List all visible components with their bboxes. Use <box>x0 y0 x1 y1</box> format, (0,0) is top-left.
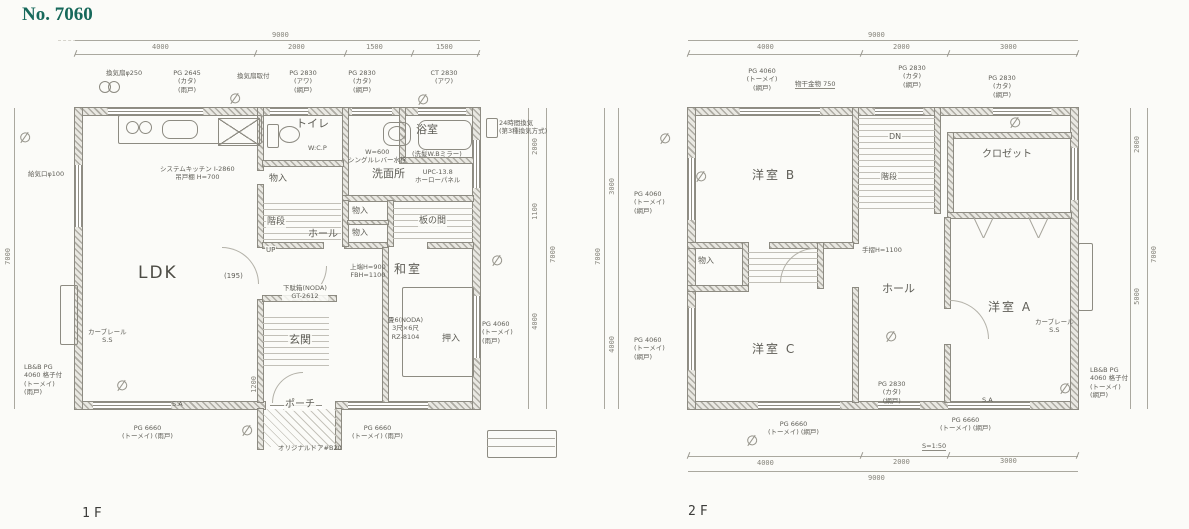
f1-note-window: PG 2830 (アワ) (網戸) <box>283 69 323 94</box>
f1-bay-window <box>60 285 78 345</box>
f2-dim-top-seg: 2000 <box>893 43 910 51</box>
f1-wall-int <box>348 221 388 224</box>
room-label-hall: ホール <box>882 282 915 296</box>
room-label-c: 洋室 C <box>752 342 796 358</box>
f2-note-curtain-rail: カーブレール S.S <box>1035 318 1074 335</box>
note-kitchen: システムキッチン I-2860 吊戸棚 H=700 <box>160 165 235 182</box>
f2-wall-int <box>818 243 823 288</box>
f2-note-window-left: PG 4060 (トーメイ) (網戸) <box>634 190 665 215</box>
room-label-bath: 浴室 <box>416 123 438 137</box>
room-label-stairs: 階段 <box>266 217 286 229</box>
f2-dim-line-bottom-total <box>688 471 1078 472</box>
room-label-b: 洋室 B <box>752 168 796 184</box>
tick <box>1076 50 1080 57</box>
f2-dim-line-left-segs <box>618 108 619 409</box>
f1-note-window: PG 2645 (カタ) (雨戸) <box>165 69 209 94</box>
f1-window <box>473 296 480 358</box>
f2-note-window-bottom: PG 6660 (トーメイ) (網戸) <box>768 420 819 437</box>
vent24-box <box>486 118 498 138</box>
f2-dim-top-total: 9000 <box>868 31 885 39</box>
f2-note-window-left: PG 4060 (トーメイ) (網戸) <box>634 336 665 361</box>
floor2-caption: 2F <box>688 504 712 519</box>
f2-note-scale: S=1:50 <box>922 442 946 451</box>
f1-dim-line-left <box>14 108 15 409</box>
room-label-closet: 物入 <box>268 174 288 186</box>
note-shoe-cabinet: 下駄箱(NODA) GT-2612 <box>282 284 328 301</box>
legend-line <box>487 446 555 447</box>
f2-dim-right-seg: 2000 <box>1133 136 1141 153</box>
f2-dim-bottom-total: 9000 <box>868 474 885 482</box>
f1-window <box>270 108 308 115</box>
f1-dim-line-top-total <box>75 40 480 41</box>
hanger-mark <box>1038 217 1049 238</box>
symbol-mark <box>20 132 28 143</box>
symbol-mark <box>242 425 250 436</box>
f2-dim-right-total: 7000 <box>1150 246 1158 263</box>
room-label-toilet: トイレ <box>296 117 329 131</box>
f2-dim-line-right-segs <box>1130 108 1131 409</box>
vent-symbol <box>108 81 120 93</box>
room-label-porch: ポーチ <box>284 398 316 411</box>
floor1-caption: 1F <box>82 506 106 521</box>
f2-note-window: PG 2830 (カタ) (網戸) <box>892 64 932 89</box>
room-label-washitsu: 和室 <box>394 262 422 278</box>
drawing-number: No. 7060 <box>22 4 93 26</box>
note-washstand: W=600 シングルレバー水栓 <box>348 148 407 165</box>
f2-wall-int <box>853 288 858 402</box>
f1-wall <box>75 108 82 409</box>
f2-wall-int <box>948 133 1071 138</box>
room-label-storage: 物入 <box>698 256 714 266</box>
note-door-195: (195) <box>224 272 243 281</box>
f2-note-window-mid: PG 2830 (カタ) (網戸) <box>878 380 906 405</box>
f2-wall-int <box>688 286 748 291</box>
f2-dim-bottom-seg: 4000 <box>757 459 774 467</box>
f1-dim-porch: 1200 <box>250 376 258 393</box>
toilet-tank <box>267 124 279 148</box>
f2-dim-left-seg: 3000 <box>608 178 616 195</box>
note-window-bottom: PG 6660 (トーメイ) (雨戸) <box>352 424 403 441</box>
f2-dim-right-seg: 5000 <box>1133 288 1141 305</box>
room-label-closet: クロゼット <box>982 148 1032 161</box>
f2-wall-int <box>948 213 1071 218</box>
note-window-left: LB&B PG 4060 格子付 (トーメイ) (雨戸) <box>24 363 62 397</box>
f2-note-window-right: LB&B PG 4060 格子付 (トーメイ) (網戸) <box>1090 366 1128 400</box>
f2-dim-top-seg: 3000 <box>1000 43 1017 51</box>
f2-wall-int <box>935 108 940 213</box>
f2-bay-window <box>1078 243 1093 311</box>
kitchen-sink <box>162 120 198 139</box>
f2-note-supply-air-mark: S.A <box>982 396 993 404</box>
f1-dim-left-total: 7000 <box>4 248 12 265</box>
room-label-a: 洋室 A <box>988 300 1032 316</box>
f2-window <box>688 308 695 370</box>
symbol-mark <box>886 331 894 342</box>
room-label-stairs: 階段 <box>880 172 898 182</box>
f1-dim-right-total: 7000 <box>549 246 557 263</box>
room-label-washroom: 洗面所 <box>372 167 405 181</box>
symbol-mark <box>660 133 668 144</box>
note-window-bottom: PG 6660 (トーメイ) (雨戸) <box>122 424 173 441</box>
room-label-oshiire: 押入 <box>442 334 460 346</box>
door-arc <box>950 300 989 339</box>
f2-wall-int <box>945 218 950 308</box>
symbol-mark <box>117 380 125 391</box>
f1-window <box>348 402 428 409</box>
f1-note-window: PG 2830 (カタ) (網戸) <box>342 69 382 94</box>
note-supply-air-mark: S.A <box>172 400 183 408</box>
f2-dim-left-total: 7000 <box>594 248 602 265</box>
hanger-mark <box>983 217 994 238</box>
note-window-right: PG 4060 (トーメイ) (雨戸) <box>482 320 513 345</box>
stairs-up-label: UP <box>265 246 276 255</box>
symbol-mark <box>747 435 755 446</box>
room-label-closet: 物入 <box>352 206 368 216</box>
f1-dim-right-seg: 4000 <box>531 313 539 330</box>
f2-wall-int <box>948 133 953 218</box>
f1-wall-int <box>428 243 473 248</box>
f1-wall-int <box>345 243 388 248</box>
f1-dim-right-seg: 2000 <box>531 138 539 155</box>
f1-dim-top-seg: 4000 <box>152 43 169 51</box>
f1-window <box>352 108 392 115</box>
f1-note-vent24: 24時間換気 (第3種換気方式) <box>499 119 547 136</box>
refrigerator-space <box>218 118 260 146</box>
f1-window <box>75 165 82 227</box>
symbol-mark <box>1010 117 1018 128</box>
note-stairs: 上端H=900 FBH=1100 <box>350 263 386 280</box>
legend-box <box>487 430 557 458</box>
note-curtain-rail: カーブレール S.S <box>88 328 127 345</box>
room-label-closet: 物入 <box>352 228 368 238</box>
washbasin-bowl <box>388 126 406 141</box>
f2-note-window-bottom: PG 6660 (トーメイ) (網戸) <box>940 416 991 433</box>
f2-dim-top-seg: 4000 <box>757 43 774 51</box>
f1-window <box>473 140 480 188</box>
f2-stairs-treads <box>858 113 935 213</box>
f2-dim-left-seg: 4000 <box>608 336 616 353</box>
f2-note-handrail: 手摺H=1100 <box>862 246 902 254</box>
stove-burner <box>126 121 139 134</box>
f2-dim-line-right-total <box>1147 108 1148 409</box>
f2-window <box>740 108 820 115</box>
f1-dim-line-right-segs <box>528 108 529 409</box>
room-label-hall: ホール <box>308 228 338 241</box>
f1-dim-top-seg: 2000 <box>288 43 305 51</box>
f1-window <box>93 402 171 409</box>
symbol-mark <box>696 171 704 182</box>
f1-dim-top-seg: 1500 <box>366 43 383 51</box>
f1-window <box>418 108 466 115</box>
f2-wall-int <box>945 345 950 402</box>
f2-window <box>758 402 840 409</box>
note-mirror: (洗髪W.Bミラー) <box>412 150 462 158</box>
note-bath-panel: UPC-13.8 ホーローパネル <box>415 168 460 185</box>
note-tatami: 畳6(NODA) 3尺×6尺 RZ-8104 <box>388 316 423 341</box>
stove-burner <box>139 121 152 134</box>
note-toilet: W:C.P <box>308 144 327 152</box>
f2-window <box>1071 148 1078 200</box>
room-label-ldk: LDK <box>138 262 178 284</box>
f2-wall-int <box>688 243 743 248</box>
f2-dim-line-left-total <box>604 108 605 409</box>
f1-dim-top-seg: 1500 <box>436 43 453 51</box>
stairs-dn-label: DN <box>888 132 902 142</box>
f2-dim-bottom-seg: 3000 <box>1000 457 1017 465</box>
note-entrance-door: オリジナルドア#B20 <box>278 444 342 452</box>
f1-wall-int <box>263 161 343 166</box>
legend-line <box>487 438 555 439</box>
f2-note-laundry: 物干金物 750 <box>795 80 835 89</box>
porch-floor <box>263 409 338 447</box>
f2-dim-line-top-segs <box>688 54 1078 55</box>
f2-dim-line-top-total <box>688 40 1078 41</box>
symbol-mark <box>1060 383 1068 394</box>
f1-wall-int <box>400 158 473 163</box>
hanger-mark <box>1028 217 1039 238</box>
symbol-mark <box>418 94 426 105</box>
f1-dim-right-seg: 1100 <box>531 203 539 220</box>
note-supply-air: 給気口φ100 <box>28 170 64 178</box>
tick <box>1076 452 1080 459</box>
f1-note-vent-fan: 換気扇φ250 <box>106 69 142 77</box>
hanger-mark <box>973 217 984 238</box>
floor-plan-sheet: No. 7060 9000 4000 2000 1500 1500 7000 2… <box>0 0 1189 529</box>
f2-window <box>688 158 695 220</box>
f1-wall-int <box>343 196 473 201</box>
f2-note-window: PG 4060 (トーメイ) (網戸) <box>740 67 784 92</box>
symbol-mark <box>492 255 500 266</box>
f1-note-mid: 換気扇取付 <box>237 72 270 80</box>
room-label-itanoma: 板の間 <box>418 216 447 228</box>
f1-window <box>108 108 203 115</box>
f1-note-window: CT 2830 (アワ) <box>424 69 464 86</box>
f1-dim-line-top-segs <box>75 54 480 55</box>
f1-dim-top-total: 9000 <box>272 31 289 39</box>
f2-dim-bottom-seg: 2000 <box>893 458 910 466</box>
room-label-genkan: 玄関 <box>288 333 312 347</box>
f2-window <box>993 108 1051 115</box>
f2-note-window: PG 2830 (カタ) (網戸) <box>982 74 1022 99</box>
f2-dim-line-bottom-segs <box>688 456 1078 457</box>
f1-dim-line-right-total <box>546 108 547 409</box>
symbol-mark <box>230 93 238 104</box>
